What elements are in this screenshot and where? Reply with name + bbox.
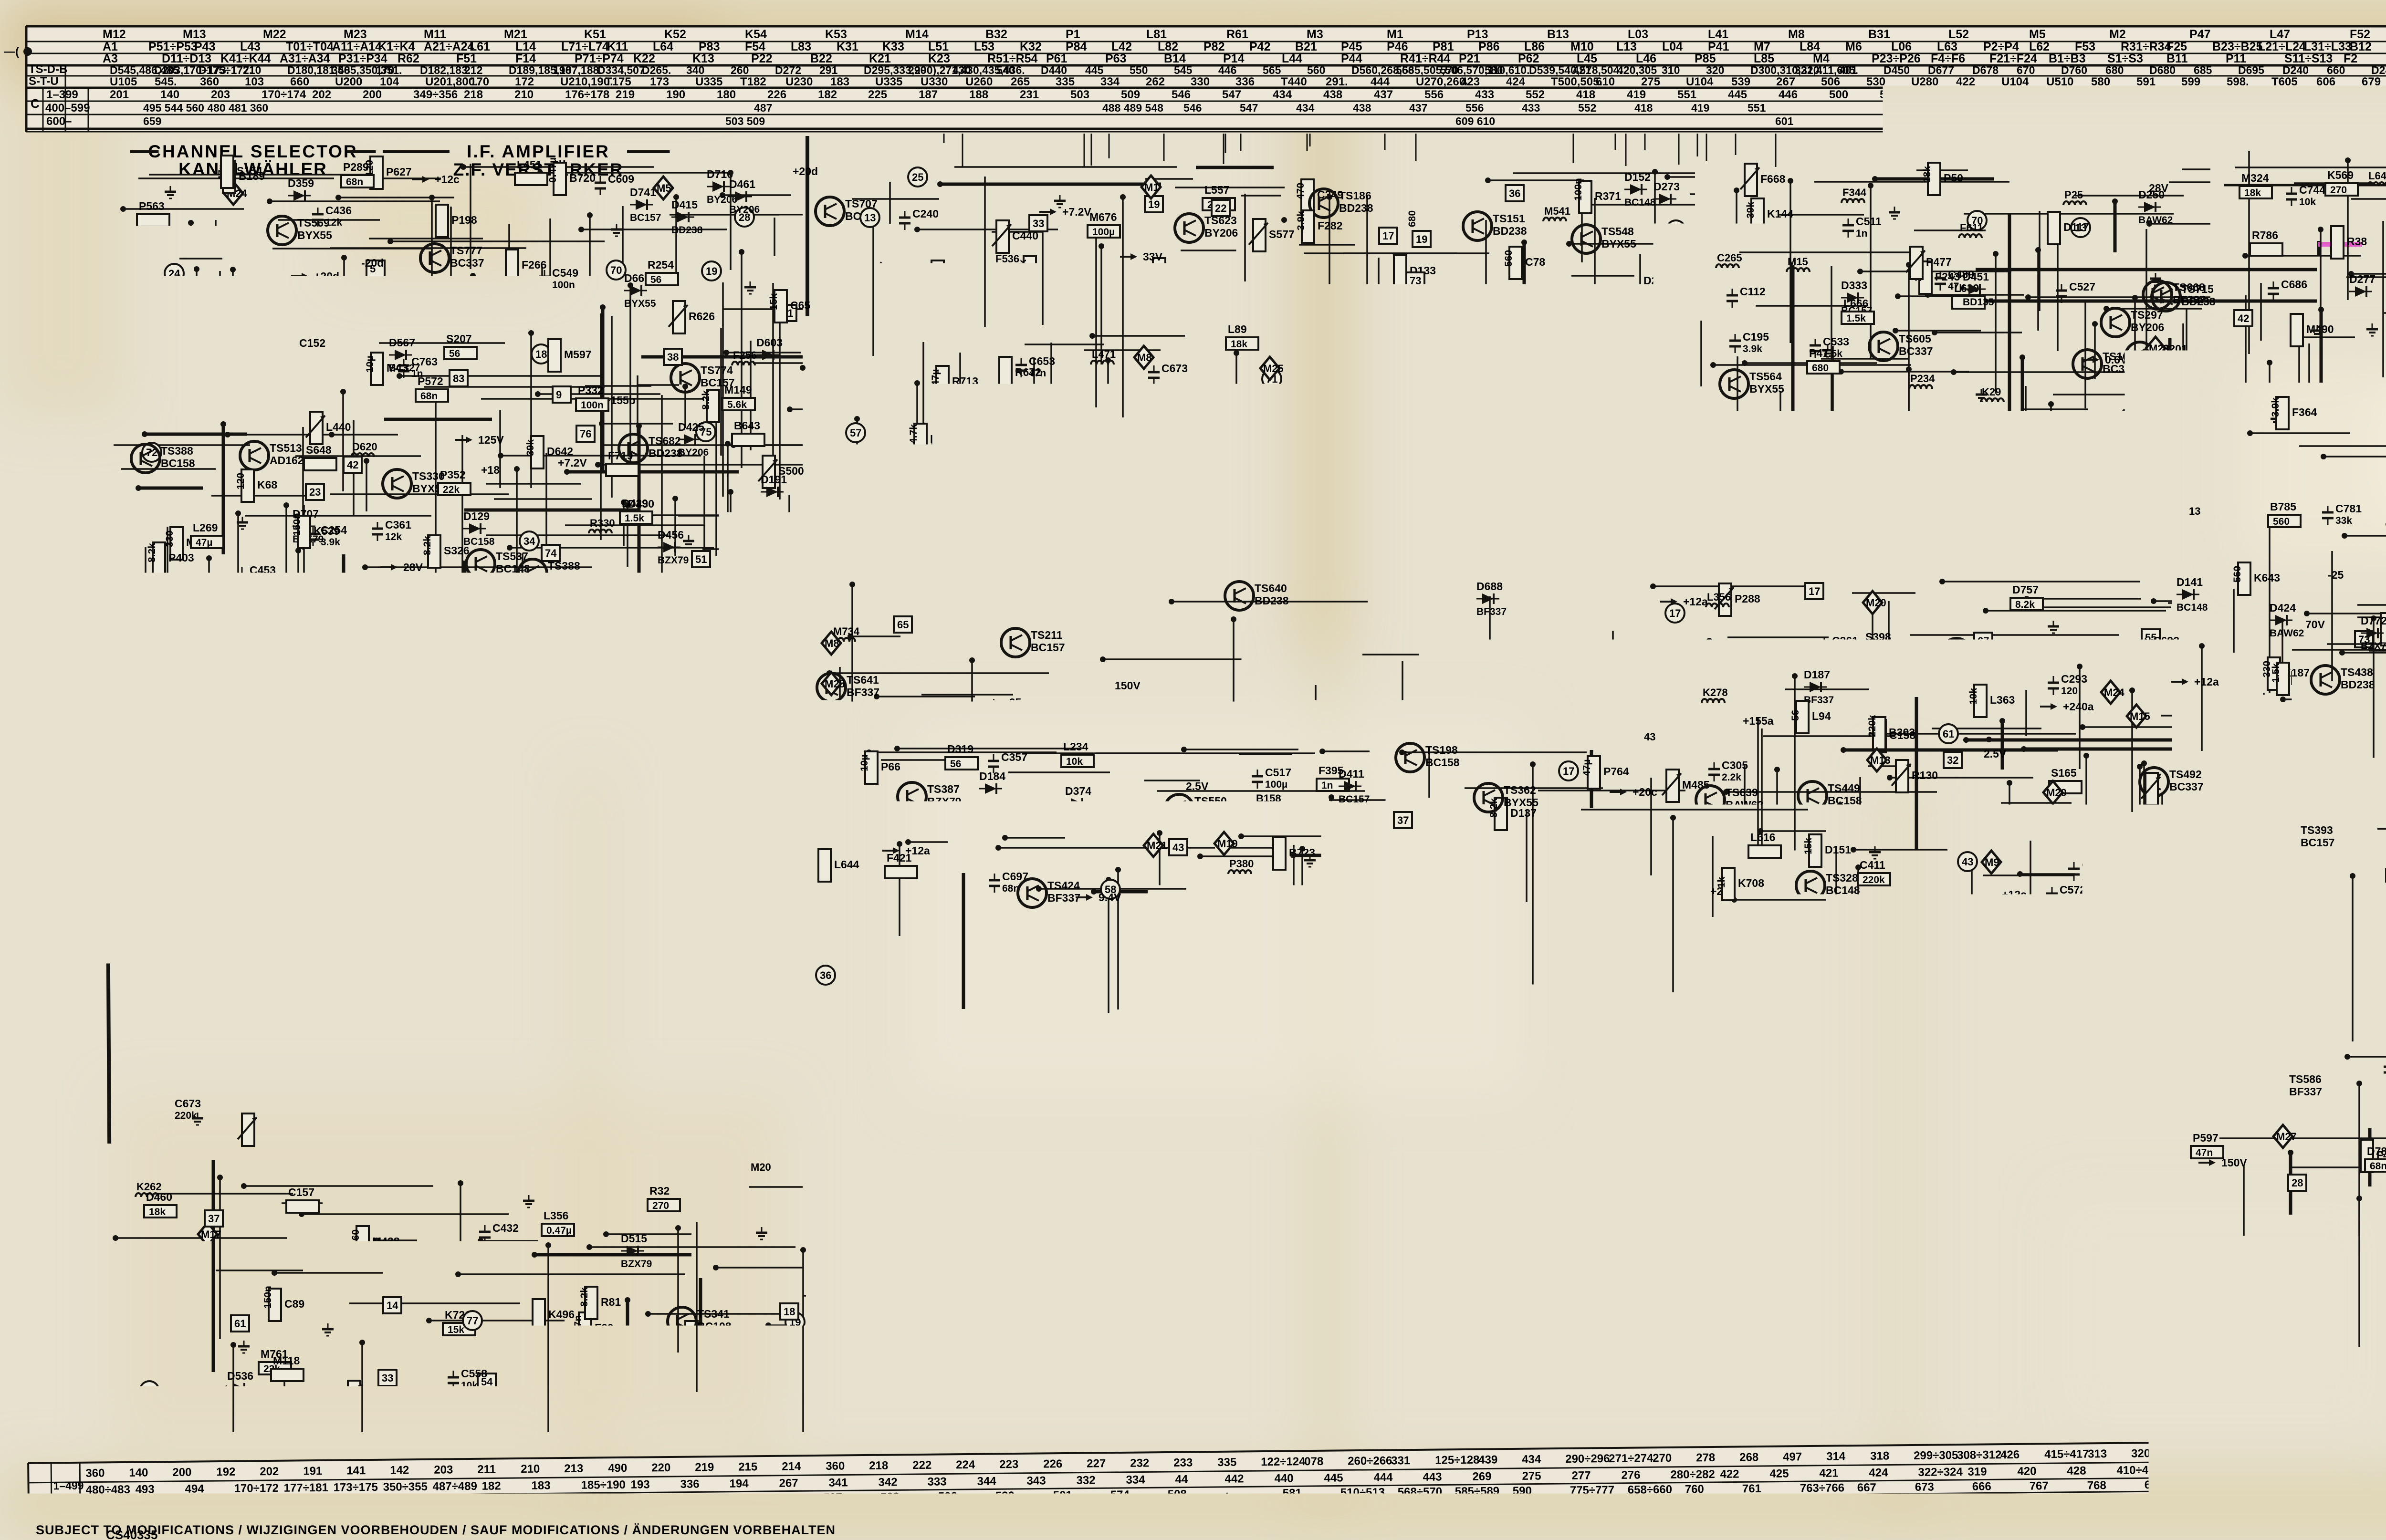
svg-text:278: 278 — [1696, 1451, 1715, 1464]
svg-text:596: 596 — [613, 1508, 632, 1520]
svg-text:570: 570 — [1440, 64, 1458, 76]
svg-text:BD238: BD238 — [1339, 202, 1373, 214]
svg-text:C78: C78 — [1525, 256, 1545, 268]
svg-text:F668: F668 — [1760, 173, 1786, 185]
svg-text:L367: L367 — [209, 944, 234, 957]
svg-text:D678: D678 — [1972, 64, 1999, 76]
svg-text:C533: C533 — [1823, 335, 1849, 348]
svg-text:659: 659 — [143, 115, 161, 127]
svg-text:F421: F421 — [887, 852, 912, 864]
svg-text:BC158: BC158 — [1828, 794, 1862, 807]
svg-text:BF337: BF337 — [369, 1155, 402, 1167]
svg-text:D277: D277 — [2349, 273, 2376, 285]
svg-text:C211: C211 — [912, 1360, 938, 1373]
svg-text:231: 231 — [1020, 88, 1039, 101]
svg-text:K490: K490 — [875, 339, 901, 352]
svg-text:R626: R626 — [689, 310, 715, 323]
svg-text:150n: 150n — [1900, 1390, 1911, 1413]
svg-text:F494: F494 — [463, 794, 488, 806]
svg-text:BD135: BD135 — [1605, 1115, 1639, 1127]
svg-text:428: 428 — [2252, 102, 2271, 114]
svg-text:2.5V: 2.5V — [1186, 780, 1209, 792]
svg-text:BAW62: BAW62 — [1113, 551, 1151, 563]
svg-text:B22: B22 — [810, 52, 832, 65]
svg-text:A21÷A24: A21÷A24 — [424, 40, 474, 53]
svg-text:506: 506 — [1821, 75, 1840, 88]
svg-text:28V: 28V — [403, 561, 423, 573]
svg-text:BYX55: BYX55 — [1408, 317, 1443, 329]
svg-text:D374: D374 — [1065, 785, 1091, 797]
svg-text:TS514: TS514 — [1731, 925, 1763, 937]
svg-text:100n: 100n — [1282, 931, 1305, 942]
svg-text:BC327: BC327 — [272, 1162, 303, 1173]
svg-text:TS709: TS709 — [892, 1139, 925, 1152]
svg-text:61: 61 — [1415, 1183, 1426, 1195]
svg-text:420: 420 — [1931, 102, 1949, 114]
svg-text:602: 602 — [912, 1505, 931, 1518]
svg-text:M19: M19 — [1217, 838, 1238, 850]
svg-text:P13: P13 — [1467, 28, 1488, 41]
svg-text:F54: F54 — [745, 40, 765, 53]
svg-text:K11: K11 — [607, 40, 628, 53]
svg-text:M5: M5 — [657, 182, 671, 194]
svg-text:572: 572 — [1981, 88, 2000, 101]
svg-text:BYX55: BYX55 — [624, 298, 656, 309]
svg-text:437: 437 — [1409, 102, 1427, 114]
svg-text:56: 56 — [1790, 710, 1801, 721]
svg-text:39k: 39k — [1745, 202, 1756, 219]
svg-text:+240a: +240a — [2192, 769, 2223, 781]
svg-text:M20: M20 — [1486, 564, 1507, 576]
svg-text:B639: B639 — [1026, 1360, 1052, 1372]
svg-text:170÷172: 170÷172 — [234, 1482, 279, 1495]
svg-text:277: 277 — [1571, 1469, 1591, 1482]
svg-text:P31÷P34: P31÷P34 — [338, 52, 387, 65]
svg-text:U210: U210 — [450, 228, 481, 242]
svg-text:8.2k: 8.2k — [1295, 343, 1306, 362]
svg-text:68n: 68n — [2370, 1161, 2386, 1172]
svg-text:K51: K51 — [584, 28, 606, 41]
svg-text:680: 680 — [1812, 363, 1829, 374]
svg-text:B31: B31 — [1868, 28, 1890, 41]
svg-text:0.47µ: 0.47µ — [1341, 561, 1366, 572]
svg-text:10k: 10k — [2342, 1297, 2353, 1314]
svg-text:TS550: TS550 — [1194, 795, 1227, 807]
svg-text:M14: M14 — [905, 28, 929, 41]
svg-text:220V: 220V — [26, 800, 55, 814]
svg-text:332: 332 — [1076, 1474, 1095, 1487]
svg-text:BD135: BD135 — [1123, 424, 1157, 437]
svg-text:470: 470 — [1295, 183, 1306, 199]
svg-text:C407: C407 — [1289, 946, 1316, 958]
svg-text:291.: 291. — [1326, 75, 1348, 88]
svg-text:260: 260 — [731, 64, 749, 76]
svg-text:K41÷K44: K41÷K44 — [220, 52, 271, 65]
svg-text:760: 760 — [1685, 1483, 1704, 1496]
svg-text:680: 680 — [2198, 1322, 2209, 1339]
svg-text:M10: M10 — [1570, 40, 1594, 53]
svg-text:TS497: TS497 — [2167, 1003, 2200, 1016]
svg-text:L471: L471 — [1092, 348, 1116, 360]
svg-text:TS756: TS756 — [934, 1194, 966, 1207]
svg-text:36: 36 — [1318, 923, 1329, 935]
svg-text:D273: D273 — [1643, 274, 1670, 287]
svg-text:C265: C265 — [1717, 252, 1742, 264]
svg-text:C744: C744 — [2299, 184, 2325, 196]
svg-text:15k: 15k — [448, 1324, 464, 1335]
svg-text:333: 333 — [927, 1475, 946, 1488]
svg-text:4822 727 60041: 4822 727 60041 — [1570, 1505, 1663, 1519]
svg-text:591: 591 — [2136, 75, 2156, 88]
svg-text:BAW62: BAW62 — [2121, 951, 2156, 962]
svg-text:P443: P443 — [555, 1023, 581, 1036]
svg-text:59: 59 — [1952, 1371, 1964, 1383]
svg-text:0.47µ: 0.47µ — [546, 1225, 572, 1236]
svg-text:342: 342 — [878, 1476, 897, 1488]
svg-text:421: 421 — [1573, 64, 1591, 76]
svg-text:33: 33 — [1396, 948, 1407, 960]
svg-text:233: 233 — [1173, 1456, 1193, 1469]
svg-text:B153: B153 — [2347, 1392, 2373, 1404]
svg-text:226: 226 — [767, 88, 786, 101]
svg-text:340: 340 — [686, 64, 704, 76]
svg-text:321: 321 — [2175, 1446, 2194, 1459]
svg-text:F386: F386 — [945, 310, 970, 322]
svg-text:S648: S648 — [306, 444, 332, 456]
svg-text:K144: K144 — [1767, 208, 1793, 220]
svg-text:2.5V: 2.5V — [400, 1041, 423, 1053]
svg-text:BYX55: BYX55 — [1601, 238, 1636, 250]
svg-text:551: 551 — [306, 1496, 325, 1509]
svg-text:D449: D449 — [2220, 1328, 2247, 1341]
svg-text:M8: M8 — [1788, 28, 1805, 41]
svg-text:L85: L85 — [1754, 52, 1774, 65]
svg-text:M216: M216 — [605, 859, 633, 872]
svg-text:M14: M14 — [594, 1388, 615, 1400]
svg-text:560: 560 — [112, 385, 123, 402]
svg-text:L644: L644 — [834, 858, 859, 871]
svg-text:TS716: TS716 — [1605, 1103, 1637, 1115]
svg-text:D330: D330 — [2042, 1039, 2069, 1051]
svg-text:270: 270 — [838, 1171, 849, 1188]
svg-text:P403: P403 — [168, 551, 194, 564]
svg-text:52: 52 — [1868, 922, 1879, 934]
svg-text:D451: D451 — [1963, 271, 1989, 283]
svg-text:456÷458: 456÷458 — [2364, 1461, 2386, 1475]
svg-text:560: 560 — [1876, 443, 1887, 460]
svg-text:D319: D319 — [596, 639, 623, 651]
svg-text:BC157: BC157 — [1946, 532, 1980, 544]
svg-text:470: 470 — [2220, 1365, 2237, 1376]
svg-text:390: 390 — [1993, 949, 2004, 966]
svg-text:BYX55: BYX55 — [1504, 796, 1538, 809]
svg-text:425: 425 — [1769, 1467, 1789, 1480]
svg-text:M438: M438 — [372, 1235, 400, 1248]
svg-text:36: 36 — [820, 969, 831, 981]
svg-text:4.7k: 4.7k — [1501, 354, 1520, 365]
svg-text:L451: L451 — [517, 158, 542, 171]
svg-text:TS513: TS513 — [270, 442, 302, 454]
svg-text:D117: D117 — [2063, 221, 2089, 233]
svg-text:BZX79: BZX79 — [168, 662, 199, 673]
svg-text:73: 73 — [756, 548, 767, 560]
svg-text:M16: M16 — [210, 1062, 230, 1074]
svg-text:C650: C650 — [1661, 309, 1687, 321]
svg-text:2.2k: 2.2k — [1801, 1324, 1821, 1335]
svg-text:65: 65 — [1708, 537, 1719, 549]
svg-text:C498: C498 — [934, 951, 960, 964]
svg-text:U335: U335 — [695, 75, 722, 88]
svg-text:32: 32 — [1947, 754, 1958, 766]
svg-text:P44: P44 — [1341, 52, 1362, 65]
svg-text:545÷548: 545÷548 — [249, 1497, 293, 1510]
svg-text:19: 19 — [1148, 198, 1160, 210]
svg-text:8.2k: 8.2k — [701, 390, 712, 410]
svg-text:182: 182 — [481, 1479, 501, 1492]
svg-text:1: 1 — [26, 773, 32, 785]
svg-text:68n: 68n — [1414, 367, 1425, 384]
svg-text:5.6k: 5.6k — [2195, 1080, 2206, 1099]
svg-text:D333: D333 — [1841, 279, 1867, 291]
svg-text:R404: R404 — [1498, 338, 1524, 351]
svg-text:51: 51 — [695, 553, 707, 565]
svg-text:T605: T605 — [2271, 75, 2298, 88]
svg-text:L04: L04 — [1662, 40, 1683, 53]
svg-text:578: 578 — [1032, 1503, 1051, 1516]
svg-text:-20d: -20d — [361, 257, 384, 269]
svg-text:321: 321 — [2234, 88, 2253, 101]
svg-text:718: 718 — [2260, 1478, 2279, 1490]
svg-text:211: 211 — [477, 1463, 496, 1476]
svg-text:24: 24 — [240, 994, 252, 1006]
svg-text:47n: 47n — [912, 1373, 929, 1384]
svg-text:L21÷L24: L21÷L24 — [2258, 40, 2306, 53]
svg-text:420,305: 420,305 — [1617, 64, 1657, 76]
svg-text:TS341: TS341 — [697, 1308, 730, 1320]
svg-text:+12a: +12a — [1683, 595, 1708, 608]
svg-text:TS401: TS401 — [369, 1142, 401, 1155]
svg-text:6.8k: 6.8k — [1785, 1199, 1796, 1219]
svg-text:M2: M2 — [2109, 28, 2126, 41]
svg-text:15k: 15k — [231, 597, 248, 608]
svg-text:D309: D309 — [2070, 1210, 2096, 1222]
svg-text:6.8k: 6.8k — [436, 596, 456, 607]
svg-text:B158: B158 — [1256, 792, 1281, 804]
svg-text:200: 200 — [363, 88, 382, 101]
svg-text:1n: 1n — [652, 1046, 663, 1058]
svg-text:D338: D338 — [1943, 1258, 1969, 1270]
svg-text:AD162: AD162 — [971, 1089, 1005, 1102]
svg-text:P198: P198 — [451, 214, 477, 226]
svg-text:TS463: TS463 — [1570, 935, 1602, 947]
svg-text:262: 262 — [1146, 75, 1165, 88]
svg-text:D772: D772 — [2361, 614, 2386, 627]
svg-text:606: 606 — [553, 1508, 572, 1521]
svg-text:593: 593 — [2022, 102, 2041, 114]
svg-text:41: 41 — [2079, 558, 2091, 570]
svg-text:C572: C572 — [2060, 884, 2086, 896]
svg-text:T500,505.: T500,505. — [1551, 75, 1602, 88]
svg-text:508: 508 — [1168, 1488, 1187, 1501]
svg-text:C411: C411 — [1860, 859, 1885, 871]
svg-text:D78: D78 — [2367, 1145, 2386, 1157]
svg-text:TS641: TS641 — [847, 674, 879, 686]
svg-text:1k: 1k — [1716, 876, 1727, 888]
svg-text:11.6V: 11.6V — [597, 885, 626, 897]
svg-text:S11÷S13: S11÷S13 — [2284, 52, 2333, 65]
svg-text:M16: M16 — [941, 1283, 962, 1295]
svg-text:D461: D461 — [729, 178, 755, 190]
svg-text:P62: P62 — [1518, 52, 1539, 65]
svg-text:BC108: BC108 — [2232, 912, 2263, 923]
svg-text:B356: B356 — [2069, 951, 2095, 964]
svg-text:318: 318 — [1870, 1449, 1889, 1462]
svg-text:100n: 100n — [581, 400, 604, 411]
svg-text:TS362: TS362 — [1504, 784, 1536, 796]
svg-text:M19: M19 — [220, 1393, 240, 1405]
svg-text:2.2k: 2.2k — [1722, 772, 1741, 783]
svg-text:182: 182 — [818, 88, 837, 101]
svg-text:FARBDIFFERENZ: FARBDIFFERENZ — [1835, 147, 1990, 167]
svg-text:F80: F80 — [168, 1291, 187, 1303]
svg-text:M5: M5 — [944, 1093, 959, 1105]
svg-text:100n: 100n — [1675, 544, 1698, 555]
svg-text:D677: D677 — [1928, 64, 1954, 76]
svg-text:C432: C432 — [1369, 1185, 1395, 1197]
svg-text:F457: F457 — [1673, 529, 1697, 541]
svg-text:BC157: BC157 — [1757, 1276, 1791, 1289]
svg-text:D692: D692 — [1629, 360, 1655, 373]
svg-text:T182: T182 — [740, 75, 766, 88]
svg-text:360: 360 — [200, 75, 219, 88]
svg-text:BC148: BC148 — [1935, 1318, 1966, 1329]
svg-text:C485: C485 — [1739, 952, 1766, 964]
svg-text:B21: B21 — [1295, 40, 1317, 53]
svg-text:C522: C522 — [850, 1400, 877, 1412]
svg-text:K494: K494 — [1092, 1040, 1118, 1052]
svg-text:F536: F536 — [995, 253, 1019, 265]
svg-text:TS211: TS211 — [1031, 629, 1063, 641]
svg-text:341: 341 — [828, 1476, 848, 1489]
svg-text:B424: B424 — [258, 1123, 284, 1135]
svg-text:M86: M86 — [947, 270, 969, 282]
svg-text:22k: 22k — [436, 1031, 453, 1042]
svg-text:K569: K569 — [2327, 169, 2354, 181]
svg-text:15k: 15k — [768, 293, 779, 310]
svg-text:C352: C352 — [1057, 499, 1084, 511]
svg-text:573: 573 — [1152, 1502, 1171, 1515]
svg-text:-25: -25 — [1545, 360, 1560, 372]
svg-text:P655: P655 — [479, 682, 504, 695]
svg-text:4.7k: 4.7k — [908, 424, 919, 444]
svg-text:C195: C195 — [1743, 331, 1769, 343]
svg-text:U104: U104 — [1686, 75, 1714, 88]
svg-text:556: 556 — [1465, 102, 1484, 114]
svg-text:C796: C796 — [1738, 1115, 1765, 1127]
svg-text:47µ: 47µ — [1738, 1128, 1755, 1139]
svg-text:D240: D240 — [2282, 64, 2309, 76]
svg-text:590: 590 — [1513, 1485, 1532, 1498]
svg-text:667: 667 — [1857, 1481, 1876, 1494]
svg-text:28V: 28V — [630, 1377, 650, 1389]
svg-text:18k: 18k — [533, 1018, 544, 1034]
svg-text:56: 56 — [474, 713, 485, 724]
svg-text:100µ: 100µ — [2101, 927, 2112, 950]
svg-text:M3: M3 — [374, 728, 389, 739]
svg-text:BD238: BD238 — [1194, 807, 1229, 820]
svg-text:BD135: BD135 — [761, 1035, 795, 1048]
svg-text:TS130: TS130 — [1200, 1394, 1233, 1406]
svg-text:11.6V: 11.6V — [565, 603, 594, 615]
svg-text:M24: M24 — [1663, 1358, 1684, 1370]
svg-text:M13: M13 — [1332, 466, 1352, 478]
svg-text:176÷178: 176÷178 — [565, 88, 609, 101]
svg-text:150n: 150n — [292, 513, 303, 536]
svg-text:82n: 82n — [1153, 524, 1164, 541]
svg-text:503: 503 — [134, 1498, 153, 1510]
svg-text:TS548: TS548 — [1601, 225, 1634, 238]
svg-text:TS438: TS438 — [2341, 666, 2373, 678]
svg-text:L646: L646 — [2368, 170, 2386, 182]
svg-text:68n: 68n — [420, 391, 438, 402]
svg-text:10k: 10k — [461, 1380, 478, 1391]
svg-text:U200: U200 — [191, 213, 222, 227]
svg-text:D265.: D265. — [642, 64, 671, 76]
svg-text:1–399: 1–399 — [46, 88, 78, 101]
svg-text:140: 140 — [160, 88, 179, 101]
svg-text:724: 724 — [2202, 1478, 2222, 1491]
svg-text:12: 12 — [1394, 450, 1406, 462]
svg-text:8.2k: 8.2k — [1548, 667, 1559, 687]
svg-text:L234: L234 — [1063, 740, 1088, 753]
svg-text:TS648: TS648 — [1408, 304, 1440, 317]
svg-text:26: 26 — [790, 1017, 801, 1029]
svg-text:320: 320 — [2183, 88, 2202, 101]
svg-text:16: 16 — [1643, 1136, 1655, 1148]
svg-text:L51: L51 — [928, 40, 949, 53]
svg-text:F364: F364 — [2292, 406, 2317, 418]
svg-text:2: 2 — [67, 773, 73, 785]
svg-text:271÷274: 271÷274 — [1609, 1452, 1653, 1465]
svg-text:BYX55: BYX55 — [1972, 651, 2007, 664]
svg-text:82n: 82n — [1095, 1055, 1112, 1066]
svg-text:R786: R786 — [2252, 229, 2278, 241]
svg-text:70V: 70V — [2305, 618, 2325, 631]
svg-text:𝄞: 𝄞 — [2341, 331, 2355, 361]
svg-text:TS586: TS586 — [2289, 1073, 2322, 1085]
svg-text:R111: R111 — [1429, 216, 1454, 229]
svg-text:S773: S773 — [2138, 1126, 2164, 1138]
svg-text:BYX55: BYX55 — [473, 312, 505, 323]
svg-text:150V: 150V — [2221, 1156, 2247, 1169]
svg-text:AD162: AD162 — [596, 665, 628, 676]
svg-text:430: 430 — [952, 64, 971, 76]
svg-text:L200: L200 — [1100, 262, 1125, 274]
svg-text:BF337: BF337 — [1476, 606, 1507, 617]
svg-text:BD238: BD238 — [671, 225, 703, 236]
svg-text:D129: D129 — [463, 510, 490, 522]
svg-text:P47: P47 — [2189, 28, 2210, 41]
svg-text:579: 579 — [1272, 1501, 1291, 1514]
svg-text:219: 219 — [695, 1461, 714, 1474]
svg-text:C616: C616 — [1806, 510, 1832, 522]
svg-text:BC327: BC327 — [1163, 1333, 1198, 1346]
svg-text:BC337: BC337 — [1957, 564, 1991, 577]
svg-text:SPEISUNG: SPEISUNG — [387, 649, 479, 667]
svg-text:187: 187 — [919, 88, 938, 101]
svg-text:-25: -25 — [2328, 569, 2344, 581]
svg-text:100µ: 100µ — [1092, 227, 1115, 238]
